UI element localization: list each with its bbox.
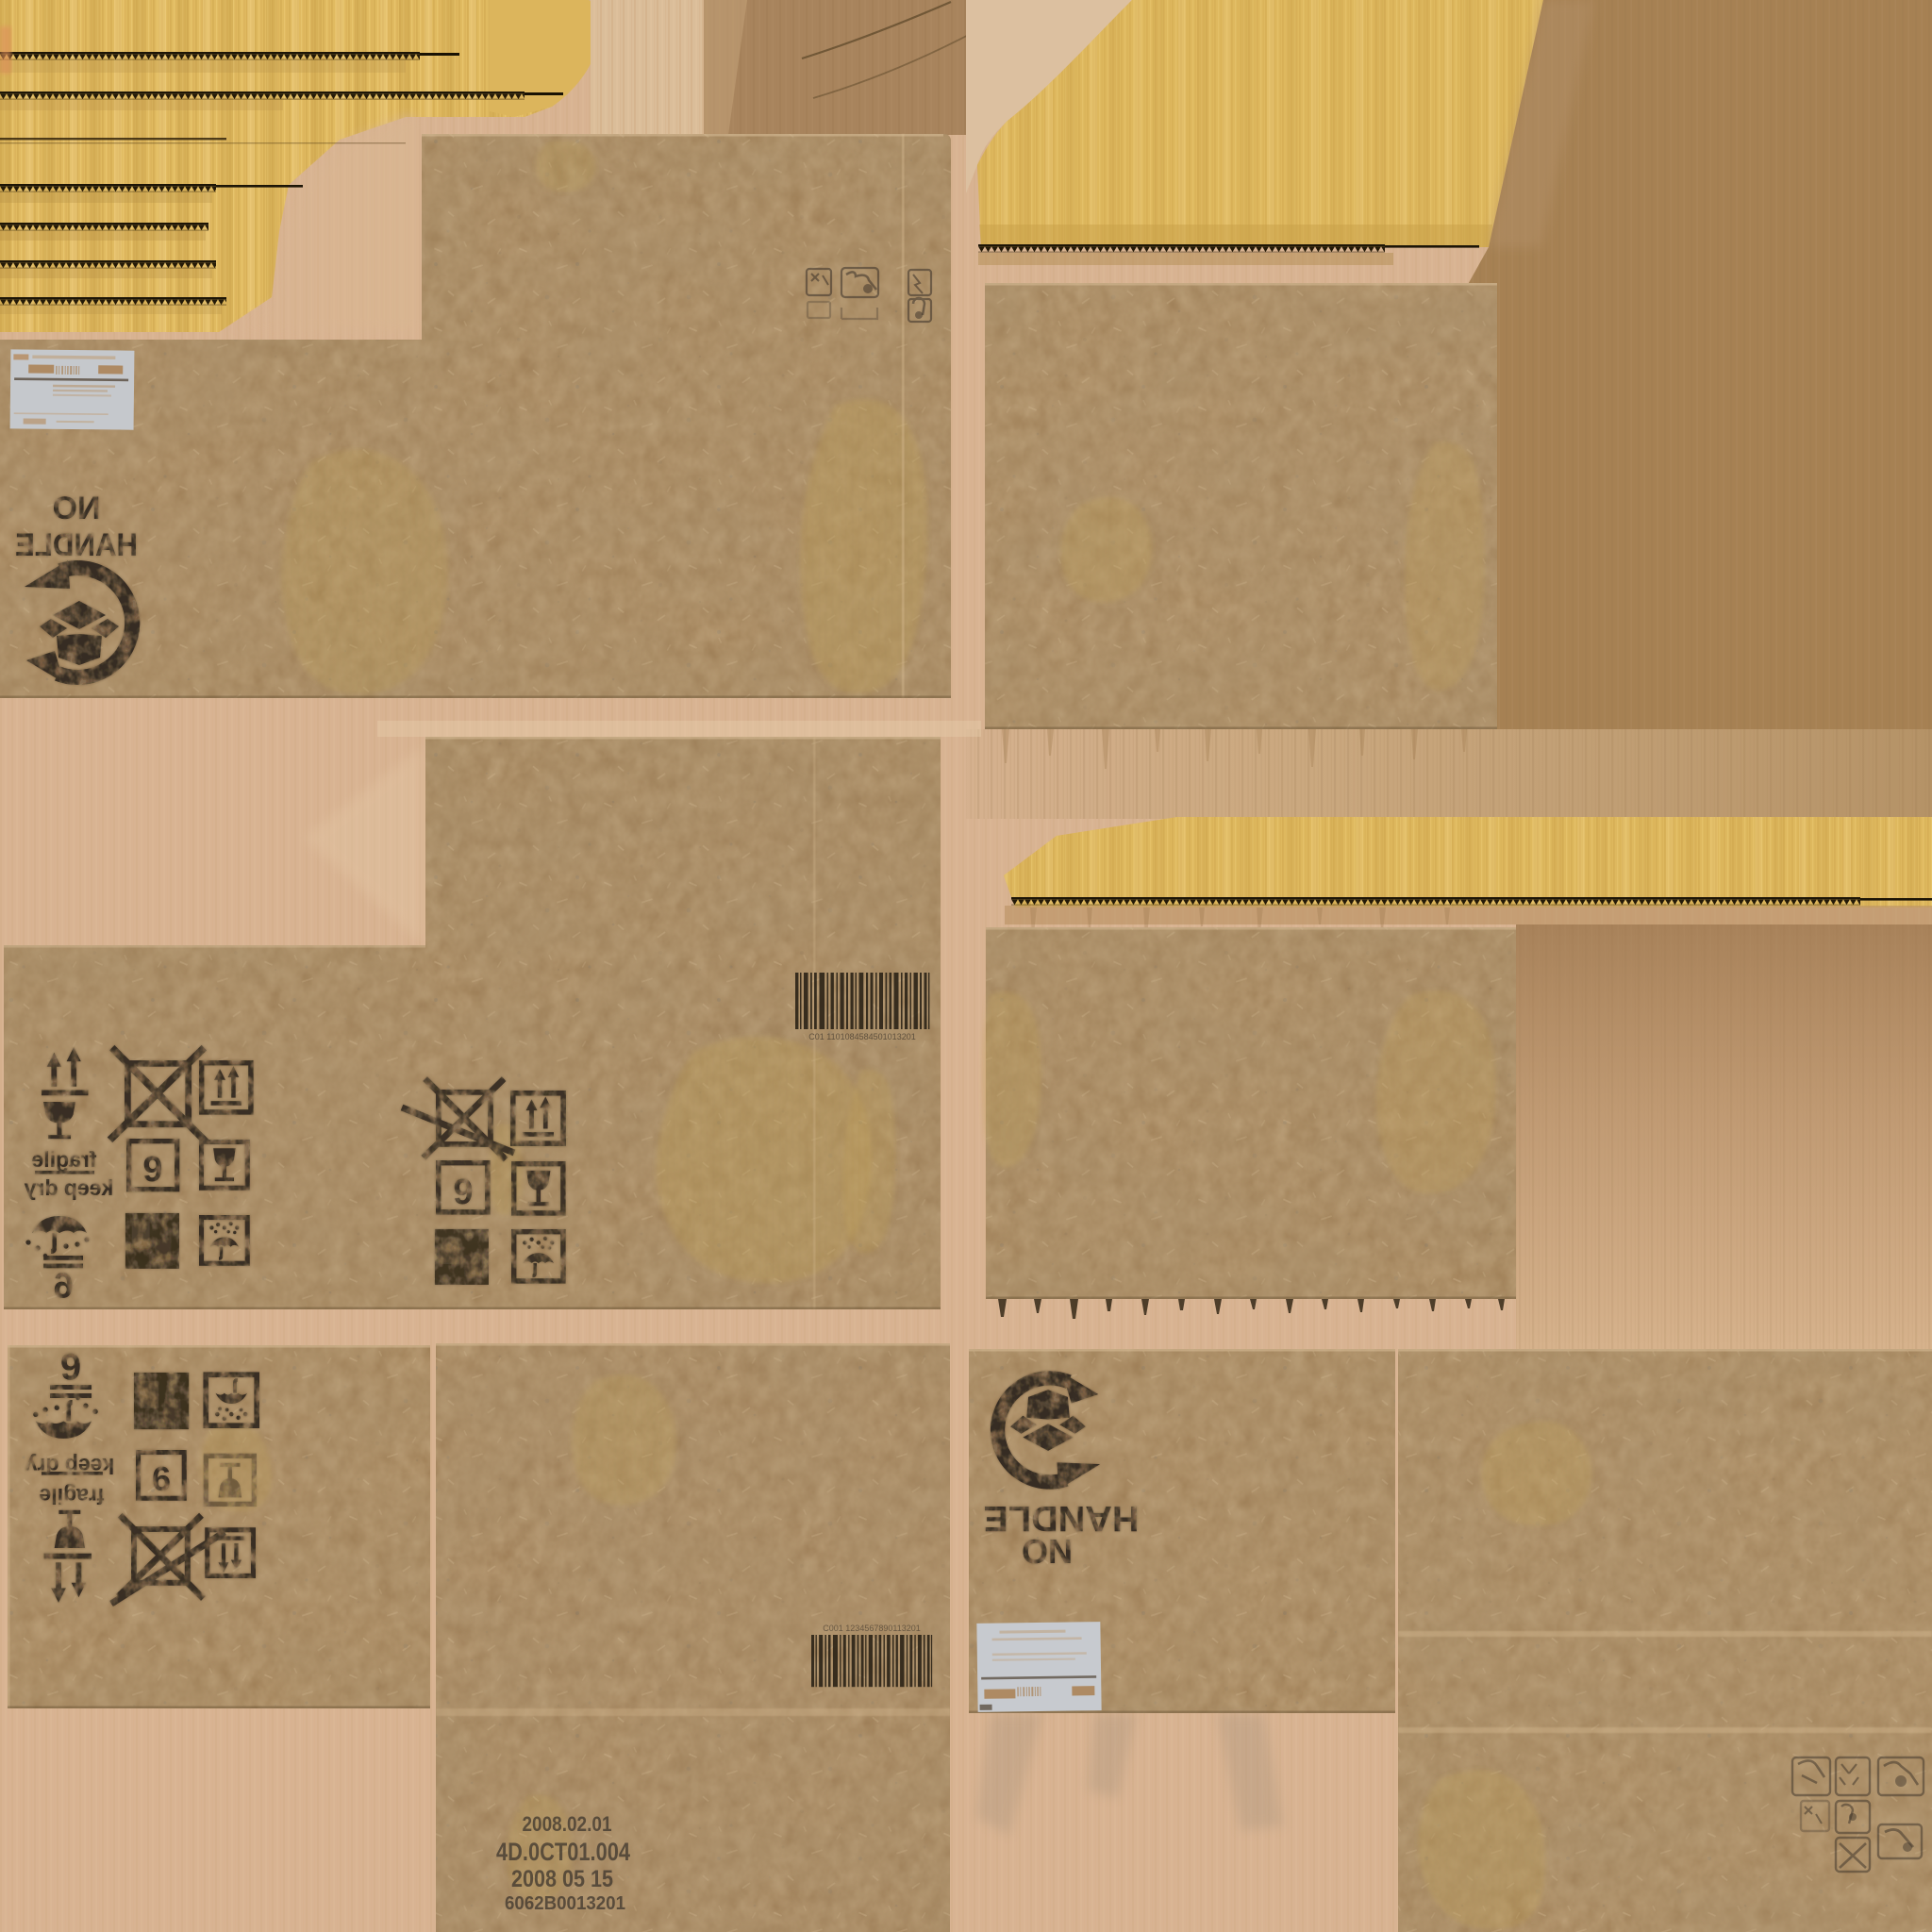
svg-text:C01 1101084584501013201: C01 1101084584501013201 [808, 1032, 915, 1041]
svg-text:9: 9 [142, 1150, 162, 1190]
svg-text:C001 1234567890113201: C001 1234567890113201 [823, 1624, 920, 1633]
svg-text:2008.02.01: 2008.02.01 [523, 1812, 612, 1836]
svg-text:NO: NO [53, 491, 101, 526]
svg-text:2008 05 15: 2008 05 15 [511, 1866, 613, 1892]
svg-text:fragile: fragile [39, 1484, 104, 1508]
svg-text:fragile: fragile [31, 1147, 96, 1172]
svg-text:keep dry: keep dry [24, 1175, 113, 1200]
svg-text:HANDLE: HANDLE [984, 1498, 1140, 1538]
svg-text:HANDLE: HANDLE [15, 527, 138, 563]
svg-text:6062B0013201: 6062B0013201 [505, 1893, 625, 1914]
svg-text:9: 9 [453, 1173, 473, 1212]
svg-text:4D.0CT01.004: 4D.0CT01.004 [496, 1838, 630, 1866]
svg-text:NO: NO [1022, 1532, 1073, 1571]
svg-text:6: 6 [152, 1459, 171, 1498]
